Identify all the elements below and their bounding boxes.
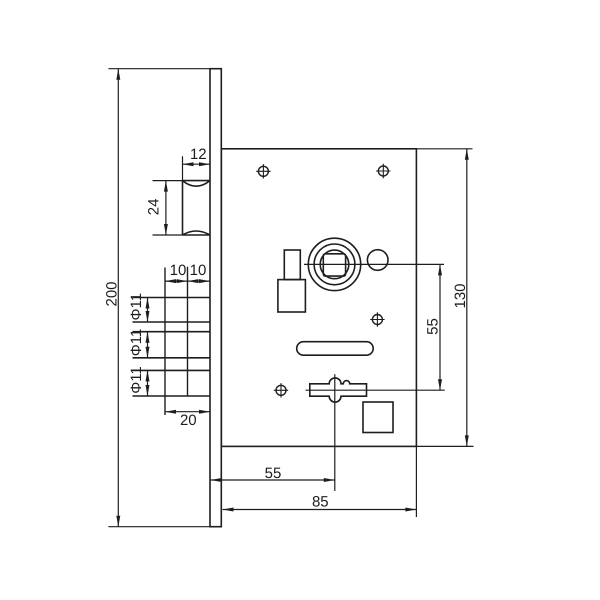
svg-text:130: 130	[452, 283, 469, 308]
svg-text:200: 200	[103, 281, 120, 306]
svg-text:10: 10	[170, 262, 187, 279]
svg-text:Φ11: Φ11	[128, 329, 145, 357]
svg-text:10: 10	[190, 262, 207, 279]
svg-text:Φ11: Φ11	[128, 293, 145, 321]
svg-text:55: 55	[265, 465, 282, 482]
svg-text:85: 85	[312, 494, 329, 511]
svg-text:Φ11: Φ11	[128, 366, 145, 394]
svg-text:24: 24	[146, 199, 163, 216]
svg-text:55: 55	[424, 318, 441, 335]
svg-text:12: 12	[190, 146, 207, 163]
svg-text:20: 20	[180, 412, 197, 429]
